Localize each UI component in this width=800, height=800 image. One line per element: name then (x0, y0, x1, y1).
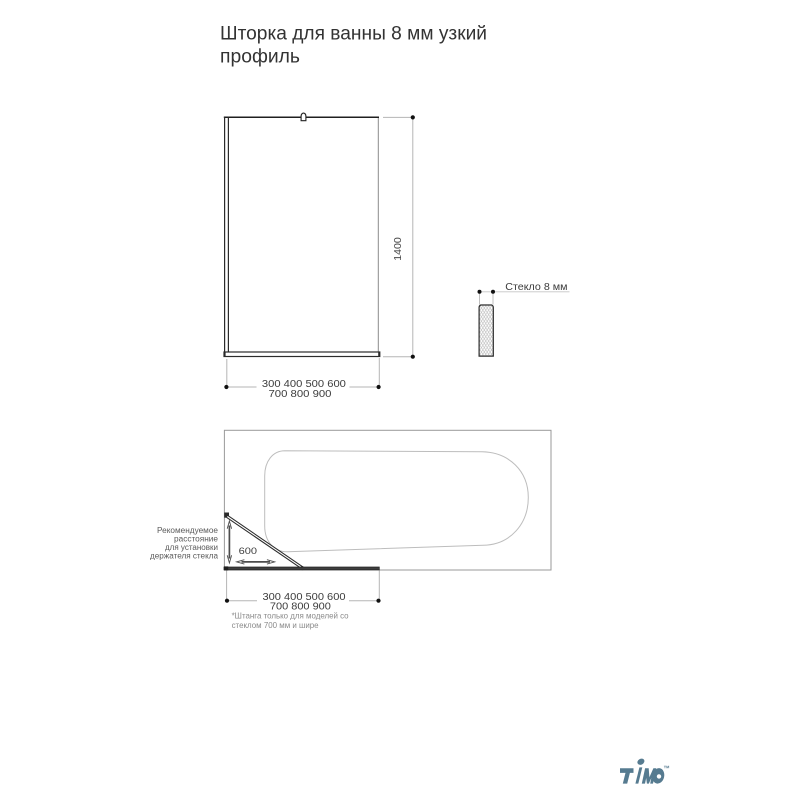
svg-text:держателя стекла: держателя стекла (150, 552, 219, 561)
svg-text:*Штанга только для моделей со: *Штанга только для моделей со (232, 612, 349, 621)
svg-text:1400: 1400 (393, 237, 404, 261)
svg-text:600: 600 (239, 546, 257, 557)
svg-text:стеклом 700 мм и шире: стеклом 700 мм и шире (232, 621, 319, 630)
svg-text:Шторка для ванны 8 мм узкий: Шторка для ванны 8 мм узкий (220, 24, 487, 45)
svg-text:профиль: профиль (220, 46, 300, 67)
svg-text:700 800 900: 700 800 900 (269, 389, 332, 400)
svg-text:Стекло 8 мм: Стекло 8 мм (505, 282, 567, 293)
